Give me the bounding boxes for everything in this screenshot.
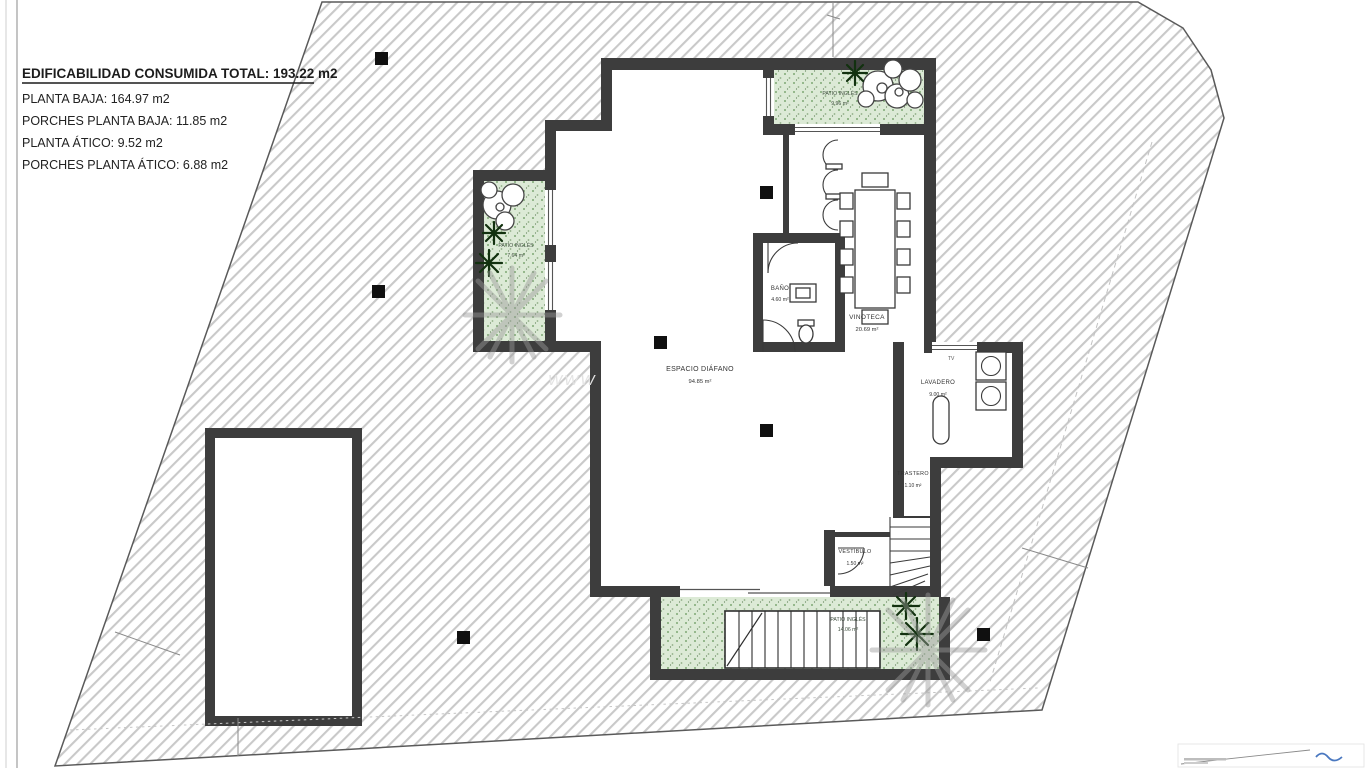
area-bano: 4.60 m² <box>771 297 789 303</box>
window <box>545 262 556 310</box>
area-trastero: 1.10 m² <box>905 483 922 489</box>
title-row-planta-atico: PLANTA ÁTICO: 9.52 m2 <box>22 135 163 150</box>
area-vinoteca: 20.69 m² <box>856 327 879 333</box>
label-vinoteca: VINOTECA <box>849 314 885 321</box>
area-espacio-diafano: 94.85 m² <box>689 379 712 385</box>
window <box>545 190 556 245</box>
floor-plan-sheet: ESPACIO DIÁFANO 94.85 m² BAÑO 4.60 m² VI… <box>0 0 1366 768</box>
window <box>763 78 774 116</box>
sheet-frame <box>6 0 17 768</box>
area-patio-top: 9.96 m² <box>831 101 849 107</box>
area-vestibulo: 1.50 m² <box>847 561 864 567</box>
edificability-total: EDIFICABILIDAD CONSUMIDA TOTAL: 193.22 m… <box>22 66 338 81</box>
label-patio-top: PATIO INGLÉS <box>822 90 858 97</box>
watermark: WWW <box>548 372 596 389</box>
area-lavadero: 9.00 m² <box>929 392 947 398</box>
title-row-porches-baja: PORCHES PLANTA BAJA: 11.85 m2 <box>22 114 227 128</box>
label-vestibulo: VESTÍBULO <box>839 548 872 555</box>
area-patio-left: 7.64 m² <box>507 253 525 259</box>
ironing-board <box>933 396 949 444</box>
sliding-door <box>680 586 830 597</box>
label-trastero: TRASTERO <box>897 471 929 477</box>
label-bano: BAÑO <box>771 285 789 292</box>
title-row-porches-atico: PORCHES PLANTA ÁTICO: 6.88 m2 <box>22 157 228 172</box>
logo-box <box>1178 744 1364 767</box>
label-lavadero: LAVADERO <box>921 380 955 386</box>
label-tv: TV <box>948 356 955 362</box>
label-patio-bottom: PATIO INGLÉS <box>830 616 866 623</box>
area-patio-bottom: 14.06 m² <box>838 627 859 633</box>
window <box>932 342 977 353</box>
label-patio-left: PATIO INGLÉS <box>498 242 534 249</box>
label-espacio-diafano: ESPACIO DIÁFANO <box>666 364 734 373</box>
floor-plan-drawing: ESPACIO DIÁFANO 94.85 m² BAÑO 4.60 m² VI… <box>0 0 1366 768</box>
window <box>795 124 880 135</box>
title-row-planta-baja: PLANTA BAJA: 164.97 m2 <box>22 92 170 106</box>
pool <box>210 433 357 721</box>
